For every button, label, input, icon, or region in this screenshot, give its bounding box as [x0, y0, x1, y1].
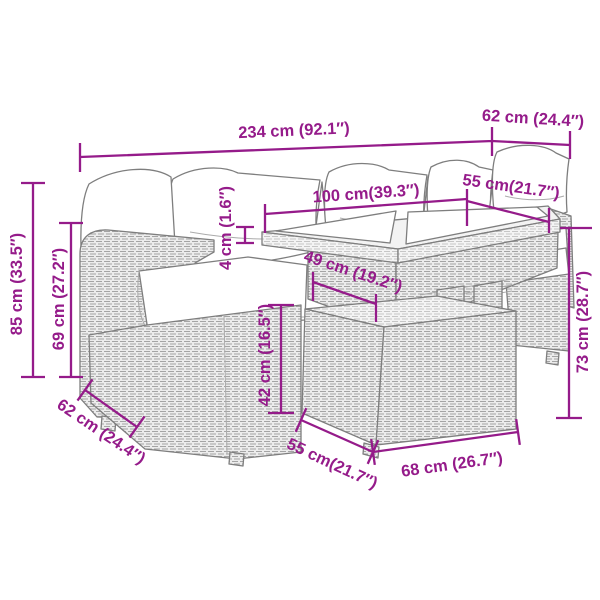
dim-label-table-height: 73 cm (28.7″) — [575, 271, 592, 373]
dim-label-glass-thickness: 4 cm (1.6″) — [218, 186, 235, 270]
dim-label-side-height: 69 cm (27.2″) — [51, 248, 68, 350]
furniture-and-dimensions-canvas — [0, 0, 600, 600]
dim-label-seat-height: 42 cm (16.5″) — [257, 304, 274, 406]
dimension-diagram: 234 cm (92.1″) 62 cm (24.4″) 100 cm(39.3… — [0, 0, 600, 600]
dim-label-backrest-height: 85 cm (33.5″) — [9, 233, 26, 335]
